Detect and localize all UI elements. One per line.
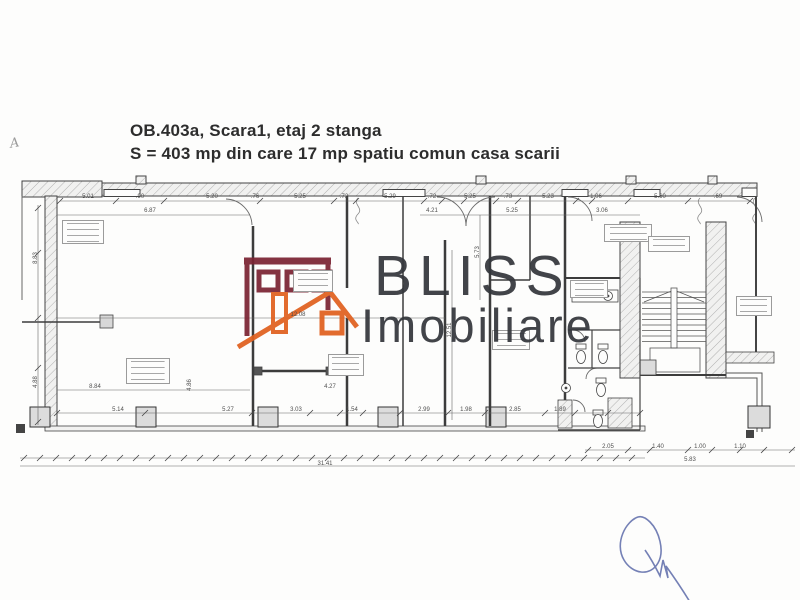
signature xyxy=(620,517,697,600)
room-label-box xyxy=(293,270,333,292)
dimension-label: 4.88 xyxy=(33,376,39,388)
dimension-label: 1.89 xyxy=(554,407,566,413)
window-break-symbols xyxy=(356,198,757,224)
scanned-floorplan-document: A OB.403a, Scara1, etaj 2 stanga S = 403… xyxy=(0,0,800,600)
dimension-label: 5.25 xyxy=(294,194,306,200)
facade-pillars xyxy=(30,407,506,427)
dimension-label: 5.60 xyxy=(654,194,666,200)
toilet-icon xyxy=(596,378,606,397)
logo-roof-icon xyxy=(238,292,357,347)
stair-column-left xyxy=(620,222,640,378)
dimension-label: 8.83 xyxy=(33,252,39,264)
dimension-label: 5.25 xyxy=(464,194,476,200)
dimension-label: 5.01 xyxy=(82,194,94,200)
dimension-label: 6.87 xyxy=(144,208,156,214)
dimension-label: 5.14 xyxy=(112,407,124,413)
dimension-label: 5.27 xyxy=(222,407,234,413)
dimension-label: .72 xyxy=(340,194,348,200)
dimension-label: 8.84 xyxy=(89,384,101,390)
dimension-label: 4.27 xyxy=(324,384,336,390)
room-label-box xyxy=(62,220,104,244)
dimension-label: 2.05 xyxy=(602,444,614,450)
watermark-brand-subname: Imobiliare xyxy=(361,298,595,353)
dimension-label: 5.20 xyxy=(206,194,218,200)
left-exterior-wall xyxy=(22,196,57,428)
dimension-label: 4.21 xyxy=(426,208,438,214)
dimension-label: 12.08 xyxy=(290,312,305,318)
dimension-label: .72 xyxy=(428,194,436,200)
dimension-label: .76 xyxy=(251,194,259,200)
dimension-label: 5.83 xyxy=(684,457,696,463)
dimension-label: .73 xyxy=(504,194,512,200)
toilet-icon xyxy=(598,344,608,364)
dimension-label: 2.85 xyxy=(509,407,521,413)
dimension-label: 31.41 xyxy=(317,461,332,467)
dimension-label: .69 xyxy=(714,194,722,200)
toilet-icon xyxy=(593,410,603,428)
dimension-label: 3.06 xyxy=(596,208,608,214)
stair-landing xyxy=(650,348,700,372)
room-label-box xyxy=(604,224,652,242)
room-label-box xyxy=(126,358,170,384)
dimension-label: 5.25 xyxy=(506,208,518,214)
dimension-label: 1.54 xyxy=(346,407,358,413)
room-label-box xyxy=(736,296,772,316)
room-label-box xyxy=(648,236,690,252)
dimension-label: 1.06 xyxy=(590,194,602,200)
bottom-exterior-wall xyxy=(16,424,645,433)
dimension-label: 5.23 xyxy=(542,194,554,200)
room-label-box xyxy=(570,280,608,298)
dimension-label: 1.40 xyxy=(652,444,664,450)
dimension-label: 2.99 xyxy=(418,407,430,413)
room-label-box xyxy=(328,354,364,376)
dimension-label: .90 xyxy=(136,194,144,200)
exterior-landing xyxy=(726,373,770,438)
dimension-label: 1.98 xyxy=(460,407,472,413)
dimension-label: 5.29 xyxy=(384,194,396,200)
dimension-label: 1.00 xyxy=(694,444,706,450)
stair-column-right xyxy=(706,222,726,378)
dimension-label: 1.10 xyxy=(734,444,746,450)
dimension-label: 4.86 xyxy=(187,379,193,391)
dimension-label: 3.03 xyxy=(290,407,302,413)
